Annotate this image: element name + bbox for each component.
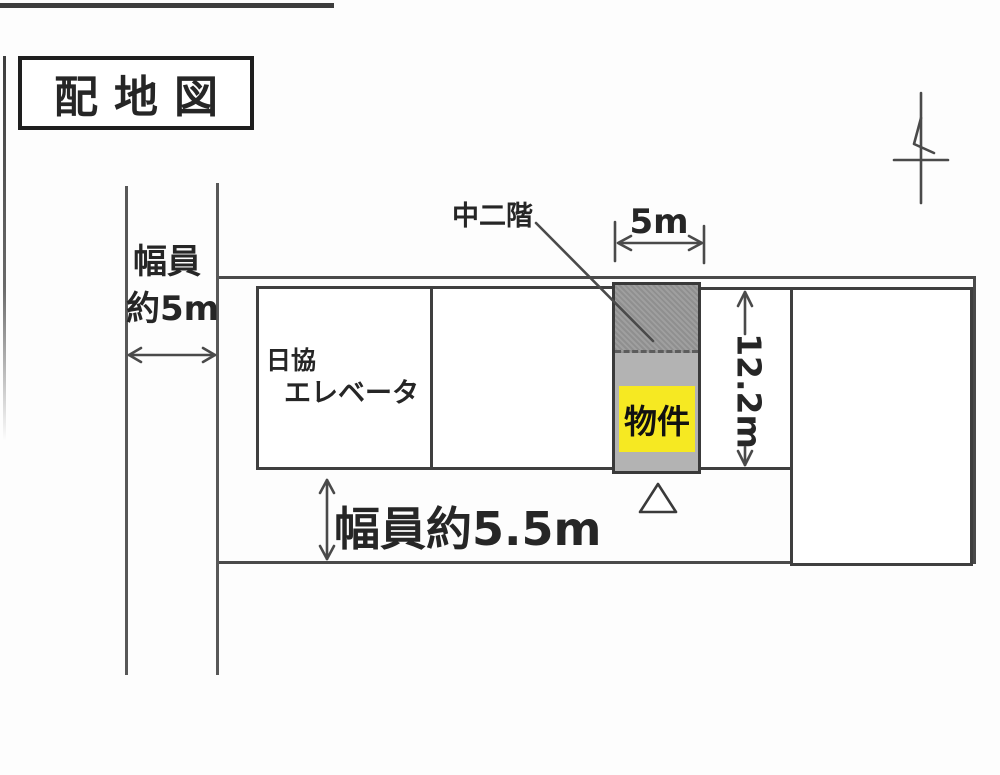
building-elevator-company-name: 日協 エレベータ [266,344,419,410]
title-box: 配地図 [18,56,254,130]
company-name-line2: エレベータ [284,377,419,410]
scan-left-border [3,56,6,441]
company-name-line1: 日協 [266,346,316,375]
north-arrow-icon [894,93,948,203]
mezzanine-label: 中二階 [452,194,533,233]
west-road-width-label-line1: 幅員 [133,234,201,283]
scan-top-border [0,3,334,8]
property-strip: 物件 [612,282,701,474]
west-road-width-arrow [129,348,215,362]
depth-dimension-label: 12.2m [730,333,769,449]
property-highlight: 物件 [619,386,695,452]
mezzanine-area [615,285,698,353]
frontage-dimension-label: 5m [613,202,705,242]
west-road-left-line [125,186,128,675]
page-title: 配地図 [38,61,234,125]
property-label: 物件 [624,395,690,443]
building-right [790,287,973,566]
south-road-width-label: 幅員約5.5m [334,493,601,559]
west-road-width-label-line2: 約5m [126,281,219,330]
site-plan-page: 配地図 幅員 約5m 日協 エレベータ 物件 中二階 5m 12.2m 幅員約5… [0,0,1000,775]
building-middle [430,286,615,470]
